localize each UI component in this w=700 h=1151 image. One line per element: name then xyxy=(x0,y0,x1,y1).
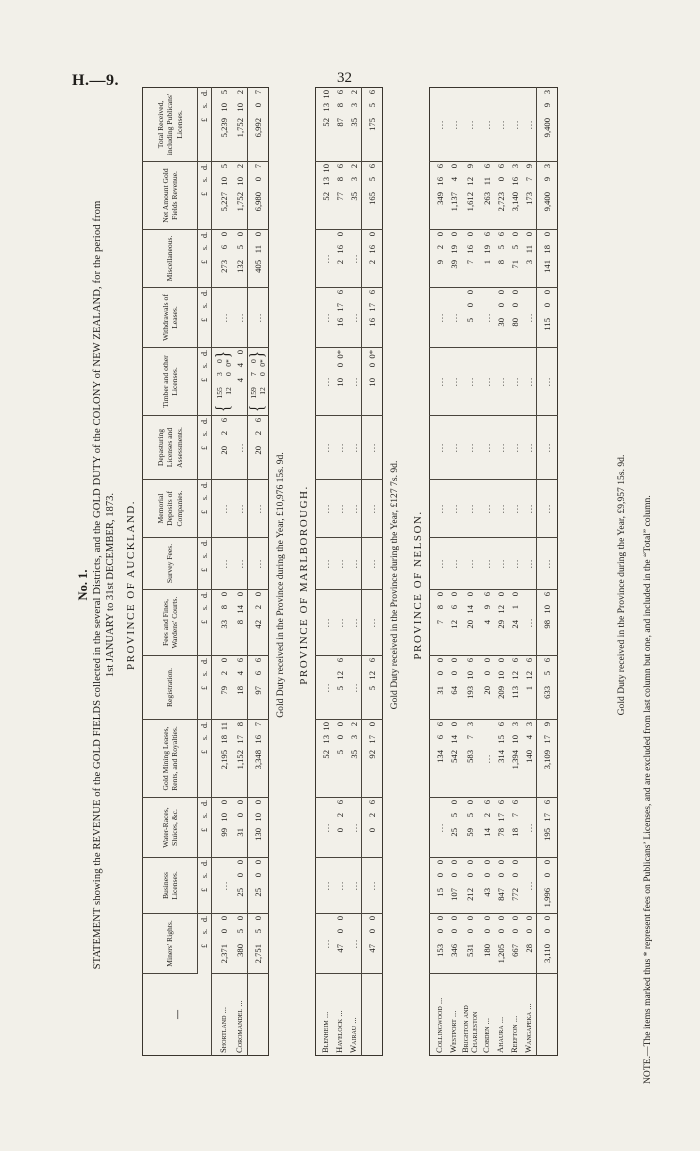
column-header-fees-and-fines-wardens-c: Fees and Fines, Wardens' Courts. xyxy=(143,590,198,656)
money-cell: 349166 xyxy=(430,162,448,230)
money-cell: 58373 xyxy=(461,720,480,798)
money-cell: 209100 xyxy=(494,656,508,720)
district-name-cell: Blenheim ... xyxy=(316,974,334,1056)
amount: 440 xyxy=(235,350,245,413)
amount: 1,752102 xyxy=(235,90,245,159)
statement-title-line2: 1st JANUARY to 31st DECEMBER, 1873. xyxy=(105,84,116,1086)
money-cell: 8000 xyxy=(508,288,522,348)
amount: 16176 xyxy=(367,290,377,345)
amount: 521310 xyxy=(321,90,331,159)
amount: 026 xyxy=(335,800,345,855)
province-heading-province-of-auckland: PROVINCE OF AUCKLAND. xyxy=(125,114,137,1056)
empty-value: ... xyxy=(253,540,263,587)
amount: 856 xyxy=(496,232,506,285)
open-brace: { xyxy=(248,405,269,412)
amount: 2500 xyxy=(235,860,245,911)
amount: 500 xyxy=(335,722,345,795)
empty-value: ... xyxy=(449,418,459,477)
totals-money-cell: 026 xyxy=(362,798,383,858)
currency-subheader-cell: £s.d. xyxy=(198,798,212,858)
money-cell: 13466 xyxy=(430,720,448,798)
money-cell: ... xyxy=(461,348,480,416)
money-cell: ... xyxy=(480,720,494,798)
district-name-cell: Cobden ... xyxy=(480,974,494,1056)
money-cell: 17379 xyxy=(522,162,537,230)
currency-subheader-cell: £s.d. xyxy=(198,480,212,538)
amount: 27360 xyxy=(219,232,229,285)
totals-money-cell: 98106 xyxy=(536,590,557,656)
money-cell: 3532 xyxy=(347,162,362,230)
money-cell: 1,752102 xyxy=(233,162,248,230)
money-cell: 496 xyxy=(480,590,494,656)
column-header-total-received-including: Total Received, including Publicans' Lic… xyxy=(143,88,198,162)
money-cell: 263116 xyxy=(480,162,494,230)
money-cell: 5950 xyxy=(461,798,480,858)
amount: 521310 xyxy=(321,722,331,795)
amount: 3,140163 xyxy=(510,164,520,227)
amount: 026 xyxy=(367,800,377,855)
column-header-water-races-sluices-c: Water-Races, Sluices, &c. xyxy=(143,798,198,858)
district-name-cell: Wangapeka ... xyxy=(522,974,537,1056)
column-header-registration: Registration. xyxy=(143,656,198,720)
empty-value: ... xyxy=(496,90,506,159)
amount: 39190 xyxy=(449,232,459,285)
money-cell: {155301200*} xyxy=(212,348,234,416)
empty-value: ... xyxy=(449,290,459,345)
currency-subheader-row: £s.d.£s.d.£s.d.£s.d.£s.d.£s.d.£s.d.£s.d.… xyxy=(198,88,212,1056)
district-name-cell: Wairau ... xyxy=(347,974,362,1056)
money-cell: ... xyxy=(233,480,248,538)
totals-money-cell: ... xyxy=(248,480,269,538)
money-cell: ... xyxy=(347,416,362,480)
amount: 21200 xyxy=(465,860,475,911)
money-cell: 5126 xyxy=(333,656,347,720)
money-cell: ... xyxy=(480,288,494,348)
empty-value: ... xyxy=(367,540,377,587)
empty-value: ... xyxy=(465,350,475,413)
amount: 29120 xyxy=(496,592,506,653)
rotated-statement-block: No. 1. STATEMENT showing the REVENUE of … xyxy=(76,84,656,1086)
money-cell: 780 xyxy=(430,590,448,656)
amount: 349166 xyxy=(435,164,445,227)
gold-duty-line-province-of-nelson: Gold Duty received in the Province durin… xyxy=(616,114,627,1056)
empty-value: ... xyxy=(235,418,245,477)
empty-value: ... xyxy=(496,540,506,587)
money-cell: 1000* xyxy=(333,348,347,416)
empty-value: ... xyxy=(435,350,445,413)
money-cell: 38050 xyxy=(233,914,248,974)
scanned-document-page: H.—9. 32 No. 1. STATEMENT showing the RE… xyxy=(0,0,700,1151)
money-cell: ... xyxy=(522,590,537,656)
amount: 8000 xyxy=(510,290,520,345)
amount: 195176 xyxy=(542,800,552,855)
amount: 2026 xyxy=(253,418,263,477)
amount: 314156 xyxy=(496,722,506,795)
amount: 1,13740 xyxy=(449,164,459,227)
currency-subheader-cell: £s.d. xyxy=(198,914,212,974)
empty-value: ... xyxy=(321,350,331,413)
money-cell: 1876 xyxy=(508,798,522,858)
totals-money-cell: 9,40093 xyxy=(536,88,557,162)
empty-value: ... xyxy=(449,350,459,413)
money-cell: 15300 xyxy=(430,914,448,974)
empty-value: ... xyxy=(449,90,459,159)
money-cell: ... xyxy=(494,480,508,538)
money-cell: ... xyxy=(212,288,234,348)
totals-money-cell: ... xyxy=(536,348,557,416)
money-cell: ... xyxy=(430,416,448,480)
money-cell: ... xyxy=(233,416,248,480)
amount: 4300 xyxy=(482,860,492,911)
amount: 4220 xyxy=(253,592,263,653)
table-row: Wangapeka ...2800......140431126........… xyxy=(522,88,537,1056)
amount: 500 xyxy=(465,290,475,345)
amount: 2160 xyxy=(367,232,377,285)
empty-value: ... xyxy=(367,418,377,477)
empty-value: ... xyxy=(449,482,459,535)
empty-value: ... xyxy=(335,860,345,911)
money-cell: 2550 xyxy=(447,798,461,858)
money-cell: ... xyxy=(347,230,362,288)
empty-value: ... xyxy=(349,418,359,477)
money-cell: 66700 xyxy=(508,914,522,974)
empty-value: ... xyxy=(321,592,331,653)
province-heading-province-of-nelson: PROVINCE OF NELSON. xyxy=(412,114,424,1056)
money-cell: ... xyxy=(347,348,362,416)
money-cell: ... xyxy=(316,416,334,480)
currency-subheader-cell: £s.d. xyxy=(198,88,212,162)
totals-money-cell: 1000* xyxy=(362,348,383,416)
money-cell: 440 xyxy=(233,348,248,416)
amount: 3,348167 xyxy=(253,722,263,795)
empty-value: ... xyxy=(435,90,445,159)
totals-money-cell: 9766 xyxy=(248,656,269,720)
totals-money-cell: 3,348167 xyxy=(248,720,269,798)
amount: 3100 xyxy=(435,658,445,717)
money-cell: 1,394103 xyxy=(508,720,522,798)
money-cell: ... xyxy=(480,348,494,416)
amount: 4700 xyxy=(367,916,377,971)
empty-value: ... xyxy=(321,232,331,285)
totals-money-cell: 6,99207 xyxy=(248,88,269,162)
empty-value: ... xyxy=(482,350,492,413)
money-cell: ... xyxy=(522,288,537,348)
empty-value: ... xyxy=(510,418,520,477)
empty-value: ... xyxy=(482,418,492,477)
empty-value: ... xyxy=(335,592,345,653)
totals-money-cell: 130100 xyxy=(248,798,269,858)
money-cell: ... xyxy=(316,480,334,538)
empty-value: ... xyxy=(496,418,506,477)
amount: 17556 xyxy=(367,90,377,159)
money-cell: 2410 xyxy=(508,590,522,656)
amount: 98106 xyxy=(542,592,552,653)
money-cell: 7786 xyxy=(333,162,347,230)
amount: 4700 xyxy=(335,916,345,971)
amount: 1126 xyxy=(524,658,534,717)
money-cell: ... xyxy=(430,480,448,538)
empty-value: ... xyxy=(219,482,229,535)
money-cell: ... xyxy=(522,88,537,162)
empty-value: ... xyxy=(235,482,245,535)
empty-value: ... xyxy=(321,290,331,345)
totals-money-cell: ... xyxy=(248,538,269,590)
table-row: Brighton and Charleston53100212005950583… xyxy=(461,88,480,1056)
money-cell: 1,752102 xyxy=(233,88,248,162)
empty-value: ... xyxy=(321,800,331,855)
empty-value: ... xyxy=(321,482,331,535)
amount: 17379 xyxy=(524,164,534,227)
totals-money-cell: 195176 xyxy=(536,798,557,858)
district-name-cell: Coromandel ... xyxy=(233,974,248,1056)
money-cell: 13250 xyxy=(233,230,248,288)
totals-money-cell: 2026 xyxy=(248,416,269,480)
money-cell: 5,239105 xyxy=(212,88,234,162)
amount: 1,612129 xyxy=(465,164,475,227)
amount: 2,72306 xyxy=(496,164,506,227)
amount: 3,11000 xyxy=(542,916,552,971)
totals-money-cell: ... xyxy=(362,480,383,538)
money-cell: ... xyxy=(316,798,334,858)
amount: 780 xyxy=(435,592,445,653)
empty-value: ... xyxy=(335,418,345,477)
empty-value: ... xyxy=(219,860,229,911)
amount: 3110 xyxy=(524,232,534,285)
amount: 3,109179 xyxy=(542,722,552,795)
amount: 63356 xyxy=(542,658,552,717)
money-cell: 39190 xyxy=(447,230,461,288)
empty-value: ... xyxy=(524,418,534,477)
money-cell: ... xyxy=(522,858,537,914)
money-cell: ... xyxy=(316,230,334,288)
table-row: Cobden ...1800043001426...2000496.......… xyxy=(480,88,494,1056)
amount: 92170 xyxy=(367,722,377,795)
money-cell: ... xyxy=(508,480,522,538)
money-cell: 4300 xyxy=(480,858,494,914)
amount: 2,1951811 xyxy=(219,722,229,795)
statement-number: No. 1. xyxy=(76,84,91,1086)
money-cell: ... xyxy=(522,416,537,480)
money-cell: ... xyxy=(316,858,334,914)
amount: 5126 xyxy=(335,658,345,717)
amount: 1,752102 xyxy=(235,164,245,227)
empty-value: ... xyxy=(435,418,445,477)
amount: 7150 xyxy=(510,232,520,285)
totals-money-cell: 11500 xyxy=(536,288,557,348)
currency-subheader-cell: £s.d. xyxy=(198,288,212,348)
empty-value: ... xyxy=(321,860,331,911)
money-cell: 5,227105 xyxy=(212,162,234,230)
money-cell: 521310 xyxy=(316,162,334,230)
column-header-miners-rights: Miners' Rights. xyxy=(143,914,198,974)
province-sections: PROVINCE OF AUCKLAND.—Miners' Rights.Bus… xyxy=(125,84,630,1086)
totals-name-cell xyxy=(248,974,269,1056)
amount: 99100 xyxy=(219,800,229,855)
amount: 2550 xyxy=(449,800,459,855)
amount: 5126 xyxy=(367,658,377,717)
money-cell: 500 xyxy=(333,720,347,798)
money-cell: 1260 xyxy=(447,590,461,656)
money-cell: 21200 xyxy=(461,858,480,914)
totals-money-cell: ... xyxy=(536,538,557,590)
money-cell: ... xyxy=(447,288,461,348)
empty-value: ... xyxy=(510,482,520,535)
district-name-cell: Shortland ... xyxy=(212,974,234,1056)
empty-value: ... xyxy=(335,540,345,587)
empty-value: ... xyxy=(349,350,359,413)
empty-value: ... xyxy=(510,90,520,159)
amount: 1000* xyxy=(367,350,377,413)
amount: 1000* xyxy=(335,350,345,413)
column-header-net-amount-gold-fields-r: Net Amount Gold Fields Revenue. xyxy=(143,162,198,230)
amount: 9766 xyxy=(253,658,263,717)
amount: 10700 xyxy=(449,860,459,911)
money-cell: ... xyxy=(333,416,347,480)
amount: 2026 xyxy=(219,418,229,477)
money-cell: 1,612129 xyxy=(461,162,480,230)
currency-subheader-cell: £s.d. xyxy=(198,590,212,656)
money-cell: 3000 xyxy=(494,288,508,348)
money-cell: 521310 xyxy=(316,88,334,162)
totals-money-cell: ... xyxy=(362,858,383,914)
currency-subheader-cell: £s.d. xyxy=(198,720,212,798)
money-cell: ... xyxy=(347,288,362,348)
empty-value: ... xyxy=(482,540,492,587)
district-name-cell: Collingwood ... xyxy=(430,974,448,1056)
district-name-cell: Brighton and Charleston xyxy=(461,974,480,1056)
money-cell: 026 xyxy=(333,798,347,858)
amount: 3100 xyxy=(235,800,245,855)
money-cell: 77200 xyxy=(508,858,522,914)
money-cell: 78176 xyxy=(494,798,508,858)
amount: 2800 xyxy=(524,916,534,971)
money-cell: ... xyxy=(461,88,480,162)
empty-value: ... xyxy=(321,658,331,717)
table-row: Shortland ...2,37100...991002,1951811792… xyxy=(212,88,234,1056)
table-row: Collingwood ...153001500...134663100780.… xyxy=(430,88,448,1056)
amount: 1500 xyxy=(435,860,445,911)
money-cell: 1126 xyxy=(522,656,537,720)
empty-value: ... xyxy=(524,860,534,911)
totals-money-cell: 16176 xyxy=(362,288,383,348)
money-cell: 113126 xyxy=(508,656,522,720)
money-cell: 2026 xyxy=(212,416,234,480)
money-cell: 3110 xyxy=(522,230,537,288)
money-cell: 53100 xyxy=(461,914,480,974)
amount: 1,394103 xyxy=(510,722,520,795)
money-cell: ... xyxy=(480,538,494,590)
empty-value: ... xyxy=(219,290,229,345)
money-cell: ... xyxy=(480,416,494,480)
empty-value: ... xyxy=(524,800,534,855)
money-cell: 542140 xyxy=(447,720,461,798)
empty-value: ... xyxy=(524,592,534,653)
empty-value: ... xyxy=(349,860,359,911)
money-cell: ... xyxy=(480,480,494,538)
amount: 66700 xyxy=(510,916,520,971)
totals-money-cell: ... xyxy=(362,416,383,480)
empty-value: ... xyxy=(435,800,445,855)
money-cell: 3532 xyxy=(347,88,362,162)
totals-money-cell: 16556 xyxy=(362,162,383,230)
money-cell: ... xyxy=(316,590,334,656)
empty-value: ... xyxy=(253,482,263,535)
amount: 16176 xyxy=(335,290,345,345)
province-heading-province-of-marlborough: PROVINCE OF MARLBOROUGH. xyxy=(298,114,310,1056)
money-cell: ... xyxy=(430,798,448,858)
money-cell: 2500 xyxy=(233,858,248,914)
empty-value: ... xyxy=(465,482,475,535)
statement-title-line1: STATEMENT showing the REVENUE of the GOL… xyxy=(92,84,103,1086)
money-cell: 500 xyxy=(461,288,480,348)
empty-value: ... xyxy=(349,482,359,535)
money-cell: 4700 xyxy=(333,914,347,974)
money-cell: ... xyxy=(316,538,334,590)
braced-amount-group: {159701200*} xyxy=(249,350,267,413)
amount: 521310 xyxy=(321,164,331,227)
amount-line: 15970 xyxy=(249,359,258,404)
empty-value: ... xyxy=(235,290,245,345)
money-cell: 3100 xyxy=(233,798,248,858)
money-cell: 7920 xyxy=(212,656,234,720)
totals-money-cell: ... xyxy=(536,480,557,538)
money-cell: 1,13740 xyxy=(447,162,461,230)
money-cell: ... xyxy=(508,348,522,416)
money-cell: ... xyxy=(233,538,248,590)
amount: 13250 xyxy=(235,232,245,285)
table-row: Reefton ...667007720018761,3941031131262… xyxy=(508,88,522,1056)
money-cell: ... xyxy=(347,480,362,538)
money-cell: 2800 xyxy=(522,914,537,974)
totals-money-cell: 141180 xyxy=(536,230,557,288)
district-name-cell: Reefton ... xyxy=(508,974,522,1056)
totals-money-cell: {159701200*} xyxy=(248,348,269,416)
district-name-cell: Westport ... xyxy=(447,974,461,1056)
amount: 78176 xyxy=(496,800,506,855)
empty-value: ... xyxy=(321,418,331,477)
totals-money-cell: 1,99600 xyxy=(536,858,557,914)
table-row: Westport ...3460010700255054214064001260… xyxy=(447,88,461,1056)
currency-subheader-cell: £s.d. xyxy=(198,538,212,590)
money-cell: ... xyxy=(494,88,508,162)
amount: 18000 xyxy=(482,916,492,971)
money-cell: 84700 xyxy=(494,858,508,914)
header-row: —Miners' Rights.Business Licenses.Water-… xyxy=(143,88,198,1056)
amount: 9,40093 xyxy=(542,164,552,227)
money-cell: 2,1951811 xyxy=(212,720,234,798)
district-name-cell: Ahaura ... xyxy=(494,974,508,1056)
money-cell: ... xyxy=(347,538,362,590)
empty-value: ... xyxy=(465,540,475,587)
money-cell: 2,37100 xyxy=(212,914,234,974)
amount: 1,99600 xyxy=(542,860,552,911)
open-brace: { xyxy=(213,405,233,412)
amount: 7160 xyxy=(465,232,475,285)
totals-money-cell: ... xyxy=(248,288,269,348)
amount: 209100 xyxy=(496,658,506,717)
money-cell: 18000 xyxy=(480,914,494,974)
table-row: Ahaura ...1,2050084700781763141562091002… xyxy=(494,88,508,1056)
money-cell: ... xyxy=(212,858,234,914)
money-cell: 2,72306 xyxy=(494,162,508,230)
empty-value: ... xyxy=(219,540,229,587)
empty-value: ... xyxy=(496,350,506,413)
money-cell: 3,140163 xyxy=(508,162,522,230)
empty-value: ... xyxy=(524,482,534,535)
amount: 77200 xyxy=(510,860,520,911)
money-cell: ... xyxy=(447,538,461,590)
amount: 6,98007 xyxy=(253,164,263,227)
